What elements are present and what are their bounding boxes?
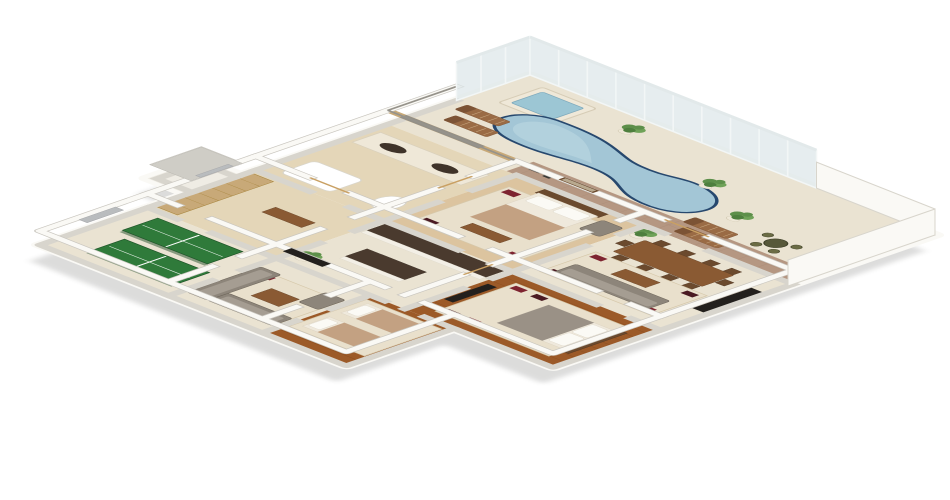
floorplan-svg: 3D isometric floor plan render of a resi… — [0, 0, 950, 500]
floorplan-render-stage: 3D isometric floor plan render of a resi… — [0, 0, 950, 500]
